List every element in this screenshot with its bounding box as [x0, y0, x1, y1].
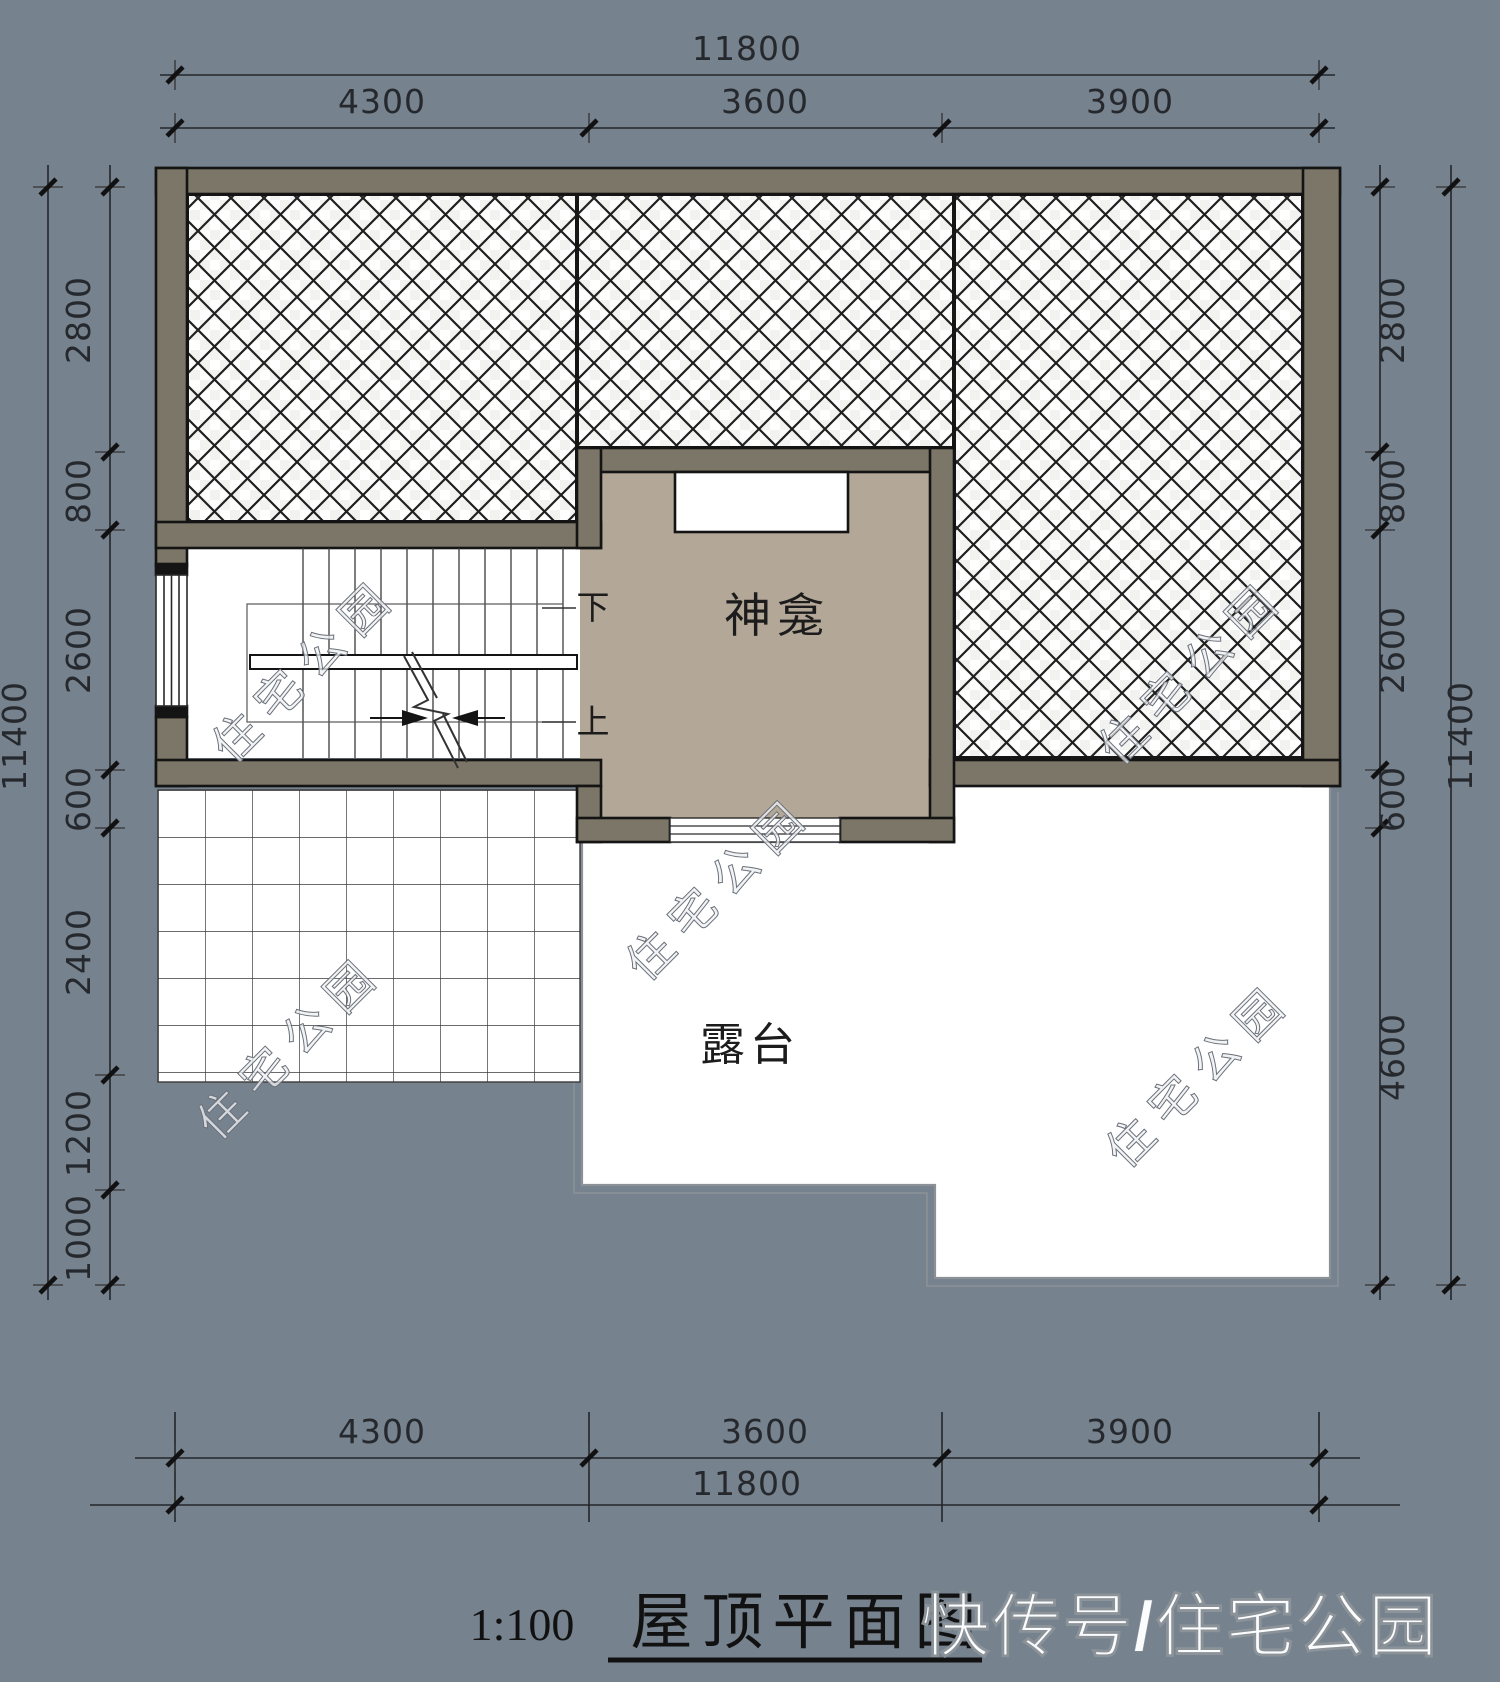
dim-top-seg-2: 3600	[721, 82, 809, 121]
dim-bottom-total: 11800	[692, 1464, 802, 1503]
dim-left-seg-2: 800	[59, 458, 98, 524]
dim-right-seg-3: 2600	[1373, 606, 1412, 694]
dim-right-total: 11400	[1441, 681, 1480, 791]
dim-left-seg-3: 2600	[59, 606, 98, 694]
dim-left-seg-1: 2800	[59, 276, 98, 364]
shrine-label: 神龛	[724, 591, 830, 643]
plan-scale: 1:100	[470, 1599, 575, 1650]
terrace-label: 露台	[700, 1020, 800, 1070]
window-icon	[156, 575, 187, 706]
dim-left-total: 11400	[0, 681, 34, 791]
dim-right-seg-2: 800	[1373, 458, 1412, 524]
altar-cabinet	[675, 472, 848, 532]
footer-watermark: 快传号/住宅公园	[921, 1588, 1439, 1665]
tile-roof-area	[158, 790, 580, 1082]
dim-left-seg-7: 1000	[59, 1194, 98, 1282]
stair-down-label: 下	[577, 591, 610, 627]
dim-top-seg-3: 3900	[1086, 82, 1174, 121]
dim-left-seg-4: 600	[59, 766, 98, 832]
dim-right-seg-4: 600	[1373, 766, 1412, 832]
dim-bottom-seg-1: 4300	[338, 1412, 426, 1451]
dim-right-seg-1: 2800	[1373, 276, 1412, 364]
dim-right-seg-5: 4600	[1373, 1013, 1412, 1101]
dim-left-seg-6: 1200	[59, 1089, 98, 1177]
dim-bottom-seg-3: 3900	[1086, 1412, 1174, 1451]
stair-up-label: 上	[577, 705, 610, 741]
dim-top-total: 11800	[692, 29, 802, 68]
floor-plan-svg: 11800 4300 3600 3900 4300 3600 3900 1180…	[0, 0, 1500, 1682]
dim-top-seg-1: 4300	[338, 82, 426, 121]
dim-bottom-seg-2: 3600	[721, 1412, 809, 1451]
title-block: 1:100 屋顶平面图	[470, 1589, 986, 1660]
roof-plan-drawing: 11800 4300 3600 3900 4300 3600 3900 1180…	[0, 0, 1500, 1682]
dim-left-seg-5: 2400	[59, 908, 98, 996]
